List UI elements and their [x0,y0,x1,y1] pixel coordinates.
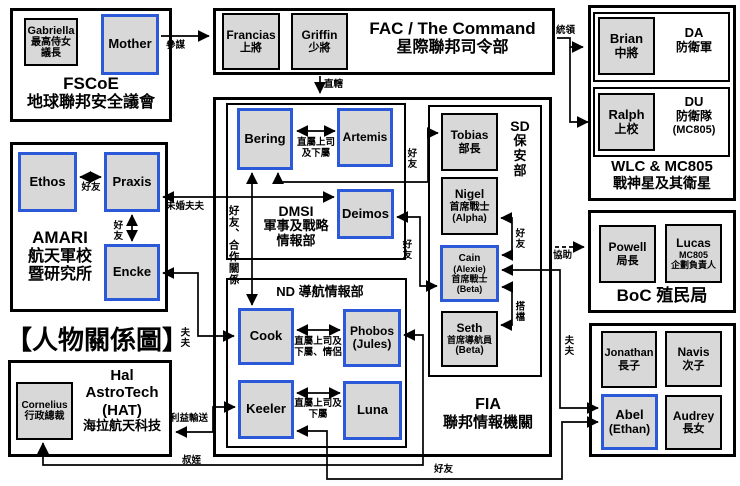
mother-name: Mother [108,37,151,52]
edge-label-liyishusong: 利益輸送 [170,413,208,424]
person-jonathan: Jonathan 長子 [601,331,657,388]
nigel-role1: 首席戰士 [450,202,490,213]
person-luna: Luna [343,381,402,440]
edge-label-zhixia: 直轄 [324,79,343,90]
praxis-name: Praxis [112,175,151,190]
edge-label-keeler-luna-2: 下屬 [292,409,344,420]
powell-name: Powell [608,241,646,254]
cain-role1: 首席戰士 [451,274,487,284]
amari-en: AMARI [14,228,106,248]
sd-l1: SD [504,118,536,134]
dmsi-zh2: 情報部 [250,234,342,249]
da-en: DA [660,26,728,41]
navis-role: 次子 [683,360,705,372]
luna-name: Luna [357,403,388,418]
ralph-name: Ralph [608,108,644,123]
fscoe-zh: 地球聯邦安全議會 [10,94,172,112]
person-navis: Navis 次子 [665,331,722,387]
audrey-name: Audrey [673,410,714,423]
hat-l2: AstroTech [76,384,168,401]
org-label-da: DA 防衛軍 [660,26,728,55]
person-tobias: Tobias 部長 [441,113,498,171]
fac-en: FAC / The Command [355,19,550,39]
edge-label-nigel-cain: 好友 [513,221,524,255]
amari-zh1: 航天軍校 [14,248,106,266]
sd-l3: 安 [504,149,536,164]
abel-name: Abel [615,408,643,423]
audrey-role: 長女 [683,423,705,435]
hat-l3: (HAT) [76,402,168,419]
edge-label-canmou: 參謀 [166,40,185,51]
fia-en: FIA [430,396,546,414]
person-cain: Cain (Alexie) 首席戰士 (Beta) [440,245,499,302]
org-label-amari: AMARI 航天軍校 暨研究所 [14,228,106,284]
sd-l2: 保 [504,134,536,149]
gabriella-role2: 議長 [41,48,61,59]
fscoe-en: FSCoE [10,74,172,94]
edge-label-keeler-luna-1: 直屬上司及 [292,398,344,409]
org-label-du: DU 防衛隊 (MC805) [660,95,728,136]
tobias-name: Tobias [451,129,489,142]
edge-label-cook-phobos: 直屬上司及 下屬、情侶 [292,336,344,359]
cain-name: Cain [459,253,481,264]
griffin-name: Griffin [302,29,338,42]
dmsi-en: DMSI [250,203,342,219]
dmsi-zh1: 軍事及戰略 [250,219,342,234]
lucas-name: Lucas [676,237,711,250]
cain-alias: (Alexie) [453,264,486,274]
cornelius-name: Cornelius [21,400,67,411]
edge-fac-wlc-da [557,38,583,47]
brian-role: 中將 [614,47,638,60]
francias-role: 上將 [240,42,262,54]
edge-label-cook-phobos-1: 直屬上司及 [292,336,344,347]
seth-name: Seth [456,322,482,335]
person-francias: Francias 上將 [222,13,280,70]
person-bering: Bering [237,108,293,170]
edge-label-praxis-encke: 好友 [111,215,122,245]
edge-label-bering-artemis-2: 及下屬 [292,148,340,159]
person-nigel: Nigel 首席戰士 (Alpha) [441,177,498,235]
person-lucas: Lucas MC805 企劃負責人 [665,224,722,283]
person-deimos: Deimos [337,189,394,239]
person-audrey: Audrey 長女 [665,395,722,450]
person-phobos: Phobos (Jules) [343,309,401,367]
person-keeler: Keeler [238,380,294,439]
org-label-fac: FAC / The Command 星際聯邦司令部 [355,19,550,57]
person-brian: Brian 中將 [598,17,655,75]
person-artemis: Artemis [337,108,393,167]
tobias-role: 部長 [459,143,481,155]
edge-label-keeler-luna: 直屬上司及 下屬 [292,398,344,421]
jonathan-role: 長子 [618,360,640,372]
person-griffin: Griffin 少將 [291,13,348,70]
hat-l4: 海拉航天科技 [76,419,168,434]
edge-label-cook-phobos-2: 下屬、情侶 [292,347,344,358]
relationship-diagram: FSCoE 地球聯邦安全議會 FAC / The Command 星際聯邦司令部… [0,0,740,486]
griffin-role: 少將 [309,42,331,54]
edge-label-cain-abel: 夫夫 [562,328,573,362]
edge-fac-wlc-du [570,47,588,122]
edge-label-bering-tobias: 好友 [405,141,416,175]
du-en: DU [660,95,728,110]
person-seth: Seth 首席導航員 (Beta) [441,311,498,367]
person-ralph: Ralph 上校 [598,93,655,151]
edge-label-bering-artemis: 直屬上司 及下屬 [292,137,340,160]
brian-name: Brian [610,32,643,47]
fac-zh: 星際聯邦司令部 [355,39,550,57]
org-label-hat: Hal AstroTech (HAT) 海拉航天科技 [76,367,168,434]
org-label-sd: SD 保 安 部 [504,118,536,179]
edge-label-keeler-abel: 好友 [434,464,453,475]
person-mother: Mother [101,14,159,75]
person-cook: Cook [238,308,294,365]
nigel-role2: (Alpha) [452,213,486,224]
keeler-name: Keeler [246,402,286,417]
person-gabriella: Gabriella 最高侍女 議長 [24,18,78,66]
du-zh: 防衛隊 [660,110,728,124]
edge-label-shuzhi: 叔姪 [182,455,201,466]
org-label-nd: ND 導航情報部 [240,285,400,300]
edge-label-deimos-cain: 好友 [400,232,411,266]
person-ethos: Ethos [18,152,77,212]
edge-label-bering-cook: 好友、合作關係 [227,183,240,307]
wlc-en: WLC & MC805 [590,158,734,175]
gabriella-role1: 最高侍女 [31,37,71,48]
seth-role1: 首席導航員 [447,335,492,345]
edge-label-cain-seth: 搭檔 [513,294,524,328]
gabriella-name: Gabriella [27,25,74,37]
encke-name: Encke [113,265,151,280]
phobos-name: Phobos [350,325,394,338]
amari-zh2: 暨研究所 [14,266,106,284]
ralph-role: 上校 [614,123,638,136]
org-label-boc: BoC 殖民局 [592,286,732,306]
wlc-zh: 戰神星及其衛星 [590,175,734,191]
bering-name: Bering [244,132,285,147]
hat-l1: Hal [76,367,168,384]
cain-role2: (Beta) [457,284,483,294]
org-label-fscoe: FSCoE 地球聯邦安全議會 [10,74,172,112]
person-encke: Encke [104,244,160,301]
edge-label-bering-artemis-1: 直屬上司 [292,137,340,148]
person-powell: Powell 局長 [599,225,656,283]
lucas-role2: 企劃負責人 [671,260,716,270]
edge-label-xiezhu: 協助 [553,250,572,261]
phobos-alias: (Jules) [353,338,392,351]
ethos-name: Ethos [29,175,65,190]
seth-role2: (Beta) [455,345,483,356]
edge-label-weihunfufu: 未婚夫夫 [166,201,204,212]
org-label-wlc: WLC & MC805 戰神星及其衛星 [590,158,734,191]
da-zh: 防衛軍 [660,41,728,55]
edge-label-ethos-praxis: 好友 [78,182,104,193]
fia-zh: 聯邦情報機關 [430,414,546,431]
org-label-dmsi: DMSI 軍事及戰略 情報部 [250,203,342,249]
person-praxis: Praxis [104,152,160,212]
edge-label-encke-cook: 夫夫 [178,322,189,352]
person-cornelius: Cornelius 行政總裁 [16,382,73,440]
cornelius-role: 行政總裁 [25,411,65,422]
org-label-fia: FIA 聯邦情報機關 [430,396,546,432]
cook-name: Cook [250,329,283,344]
francias-name: Francias [226,29,275,42]
lucas-role1: MC805 [679,250,708,260]
jonathan-name: Jonathan [605,347,654,359]
nigel-name: Nigel [455,188,484,201]
navis-name: Navis [677,346,709,359]
person-abel: Abel (Ethan) [601,394,658,450]
page-title: 【人物關係圖】 [6,320,188,357]
du-note: (MC805) [660,124,728,137]
deimos-name: Deimos [342,207,389,222]
abel-alias: (Ethan) [609,423,650,436]
sd-l4: 部 [504,164,536,179]
edge-label-tongling: 統領 [556,25,575,36]
artemis-name: Artemis [343,131,388,144]
powell-role: 局長 [617,255,639,267]
